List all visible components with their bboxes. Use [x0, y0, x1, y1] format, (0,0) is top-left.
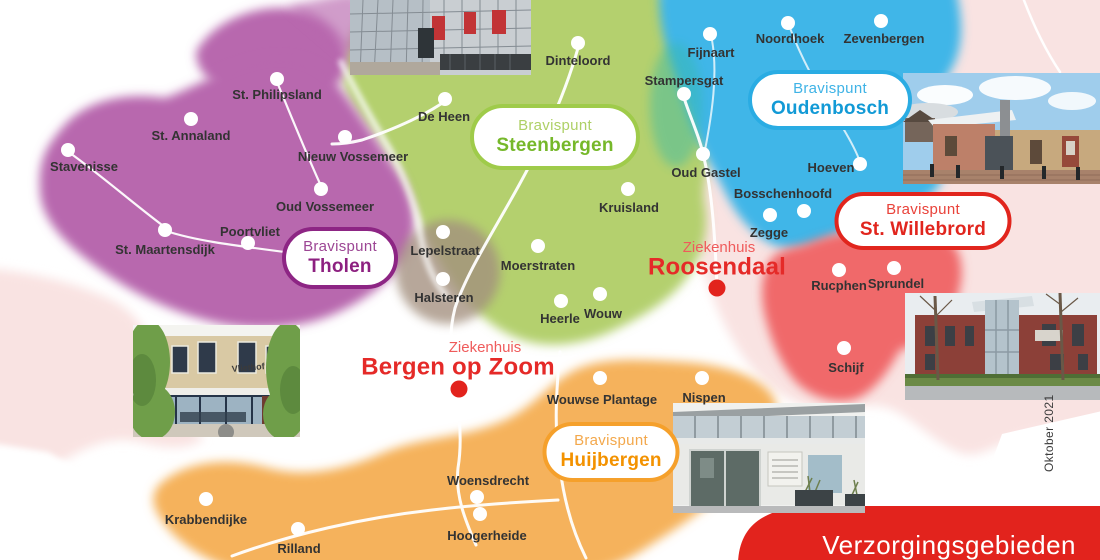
town-marker	[887, 261, 901, 275]
town-label: Hoeven	[808, 160, 855, 175]
town-label: St. Philipsland	[232, 87, 322, 102]
banner: Verzorgingsgebieden	[738, 506, 1100, 560]
town-marker	[837, 341, 851, 355]
town-label: Hoogerheide	[447, 528, 526, 543]
town-marker	[199, 492, 213, 506]
town-marker	[593, 287, 607, 301]
town-marker	[593, 371, 607, 385]
town-label: Wouwse Plantage	[547, 392, 657, 407]
town-label: De Heen	[418, 109, 470, 124]
town-marker	[291, 522, 305, 536]
town-marker	[571, 36, 585, 50]
hospital-marker	[451, 381, 468, 398]
town-label: Stavenisse	[50, 159, 118, 174]
town-marker	[832, 263, 846, 277]
town-marker	[270, 72, 284, 86]
town-marker	[621, 182, 635, 196]
town-marker	[436, 272, 450, 286]
town-marker	[531, 239, 545, 253]
town-label: Heerle	[540, 311, 580, 326]
town-marker	[695, 371, 709, 385]
town-label: Dinteloord	[546, 53, 611, 68]
town-label: Krabbendijke	[165, 512, 247, 527]
town-marker	[853, 157, 867, 171]
town-marker	[781, 16, 795, 30]
town-marker	[436, 225, 450, 239]
town-label: Zegge	[750, 225, 788, 240]
region-blend-teal	[650, 43, 702, 167]
town-label: Zevenbergen	[844, 31, 925, 46]
town-label: Halsteren	[414, 290, 473, 305]
town-marker	[338, 130, 352, 144]
town-label: Nispen	[682, 390, 725, 405]
town-label: Stampersgat	[645, 73, 724, 88]
town-label: Nieuw Vossemeer	[298, 149, 408, 164]
town-marker	[473, 507, 487, 521]
town-marker	[184, 112, 198, 126]
town-marker	[763, 208, 777, 222]
banner-title: Verzorgingsgebieden	[822, 530, 1076, 560]
town-label: Rucphen	[811, 278, 867, 293]
town-label: Lepelstraat	[410, 243, 480, 258]
vliethof-building-photo: Vliethof	[126, 320, 310, 440]
town-label: Sprundel	[868, 276, 924, 291]
town-label: Noordhoek	[756, 31, 825, 46]
town-label: Moerstraten	[501, 258, 575, 273]
town-marker	[677, 87, 691, 101]
town-marker	[696, 147, 710, 161]
care-areas-map-page: Verzorgingsgebieden	[0, 0, 1100, 560]
town-label: Kruisland	[599, 200, 659, 215]
town-label: Woensdrecht	[447, 473, 530, 488]
bravispunt-oudenbosch-photo	[898, 73, 1100, 184]
map: Verzorgingsgebieden	[0, 0, 1100, 560]
town-label: Bosschenhoofd	[734, 186, 832, 201]
town-marker	[703, 27, 717, 41]
town-marker	[438, 92, 452, 106]
town-marker	[797, 204, 811, 218]
town-marker	[314, 182, 328, 196]
town-label: Poortvliet	[220, 224, 281, 239]
town-marker	[874, 14, 888, 28]
town-marker	[470, 490, 484, 504]
town-marker	[554, 294, 568, 308]
bravispunt-huijbergen-photo	[673, 403, 875, 513]
town-label: Oud Vossemeer	[276, 199, 374, 214]
town-label: St. Maartensdijk	[115, 242, 215, 257]
town-label: Schijf	[828, 360, 864, 375]
medisch-centrum-parkzicht-photo	[905, 293, 1100, 400]
town-label: Wouw	[584, 306, 623, 321]
hospital-marker	[709, 280, 726, 297]
town-label: Fijnaart	[688, 45, 736, 60]
town-marker	[158, 223, 172, 237]
town-label: Rilland	[277, 541, 320, 556]
town-label: St. Annaland	[152, 128, 231, 143]
town-label: Oud Gastel	[671, 165, 740, 180]
bravis-glass-building-photo	[350, 0, 531, 75]
town-marker	[61, 143, 75, 157]
